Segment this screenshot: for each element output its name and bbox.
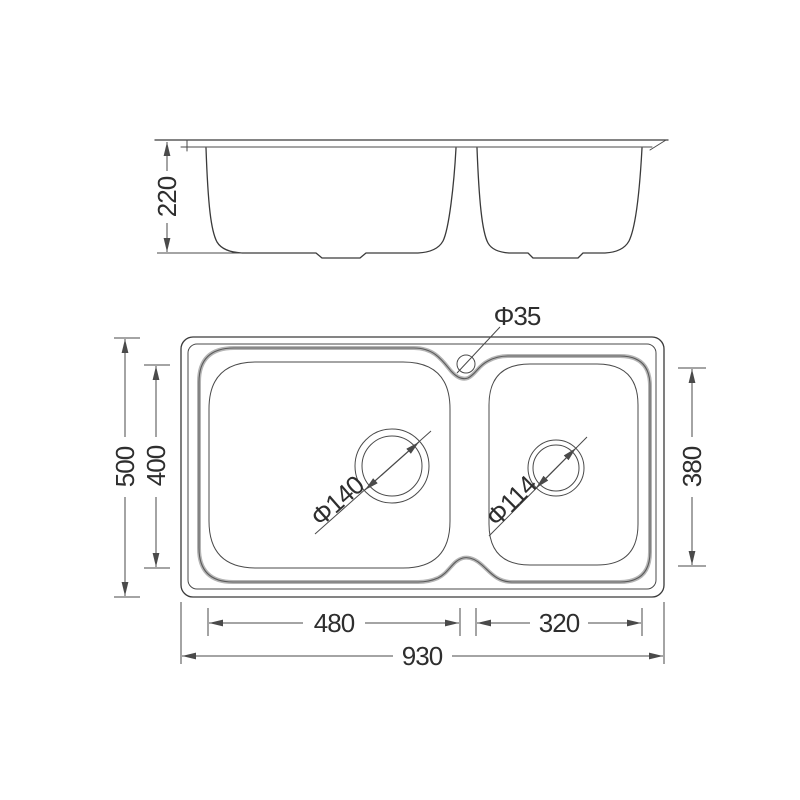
sink-technical-drawing: 220 Φ35 Φ140 Φ114 [0,0,800,800]
bowl-rim-band-edge [199,348,650,582]
diameter-arrow [556,448,576,468]
right-bowl-width-label: 320 [539,608,580,638]
right-bowl-inner-edge [489,364,638,565]
side-left-bowl-profile [206,148,456,258]
dimension-left-bowl-depth: 400 [141,365,171,568]
diameter-arrow [536,468,556,488]
bowl-rim-band [199,348,650,582]
sink-outer-edge [181,337,664,597]
plan-view: Φ35 Φ140 Φ114 500 [110,301,707,671]
diameter-arrow [365,466,392,490]
side-height-label: 220 [152,176,182,217]
left-bowl-width-label: 480 [314,608,355,638]
dimension-right-bowl-depth: 380 [677,368,707,566]
overall-width-label: 930 [402,641,443,671]
left-bowl-depth-label: 400 [141,445,171,486]
right-bowl-depth-label: 380 [677,446,707,487]
dimension-overall-width: 930 [181,602,664,671]
side-rim-right-lip [650,140,666,150]
faucet-hole-label: Φ35 [494,301,541,331]
dimension-left-drain: Φ140 [305,431,431,534]
left-drain-label: Φ140 [305,469,370,532]
diameter-arrow [392,442,419,466]
side-right-bowl-profile [477,148,642,258]
dimension-right-bowl-width: 320 [476,608,642,638]
dimension-left-bowl-width: 480 [208,608,460,638]
overall-depth-label: 500 [110,446,140,487]
left-bowl-inner-edge [209,362,450,568]
drawing-svg: 220 Φ35 Φ140 Φ114 [0,0,800,800]
side-elevation-view: 220 [152,140,668,258]
dimension-overall-depth: 500 [110,338,140,597]
dimension-bowl-depth: 220 [152,142,182,252]
